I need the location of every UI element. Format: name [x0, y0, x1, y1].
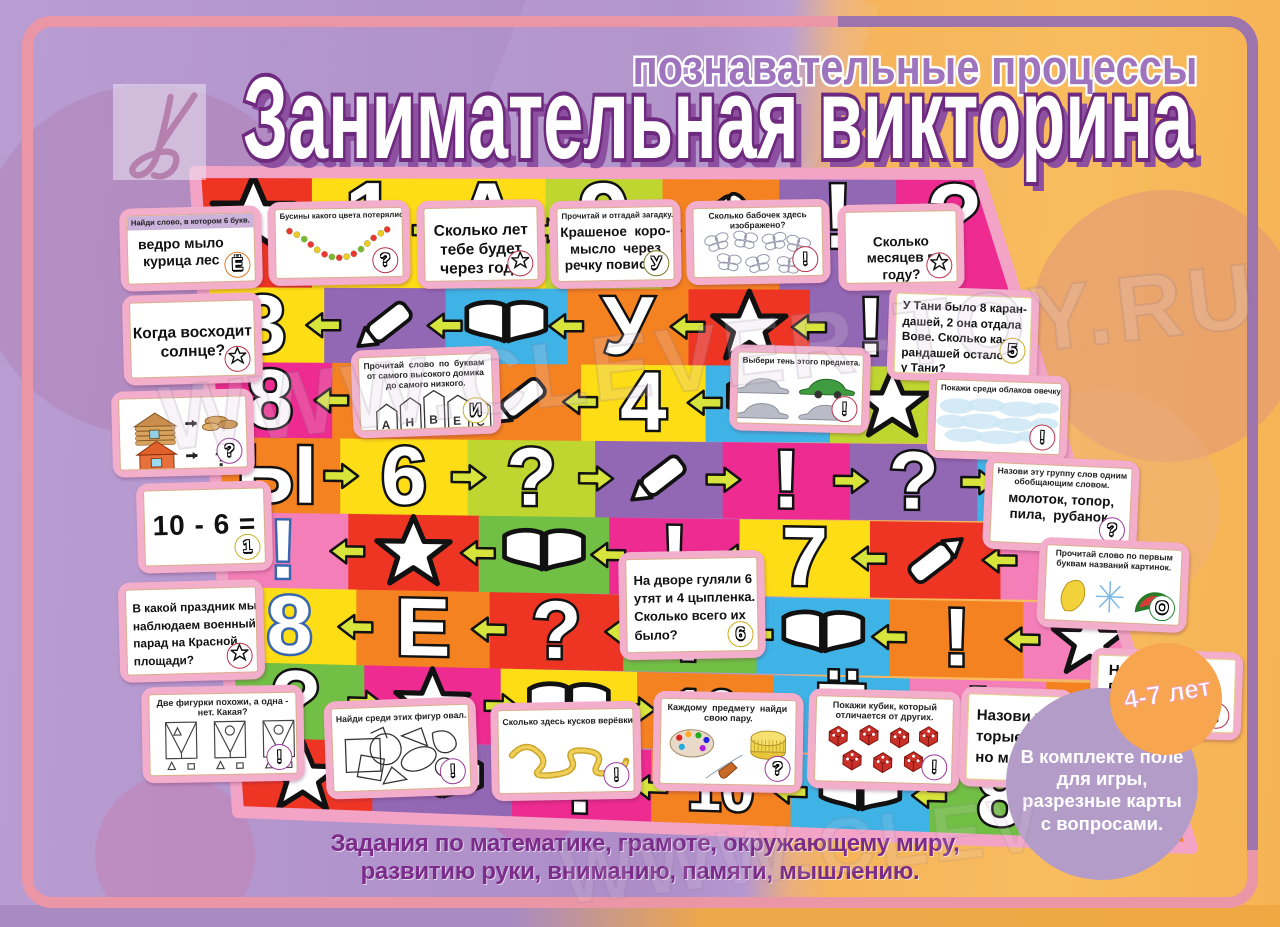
svg-text:7: 7: [782, 510, 828, 604]
svg-text:Е: Е: [396, 582, 451, 674]
svg-text:?: ?: [531, 584, 581, 676]
svg-text:Занимательная викторина: Занимательная викторина: [243, 53, 1194, 183]
svg-text:?: ?: [506, 432, 556, 523]
svg-text:!: !: [1127, 358, 1155, 451]
